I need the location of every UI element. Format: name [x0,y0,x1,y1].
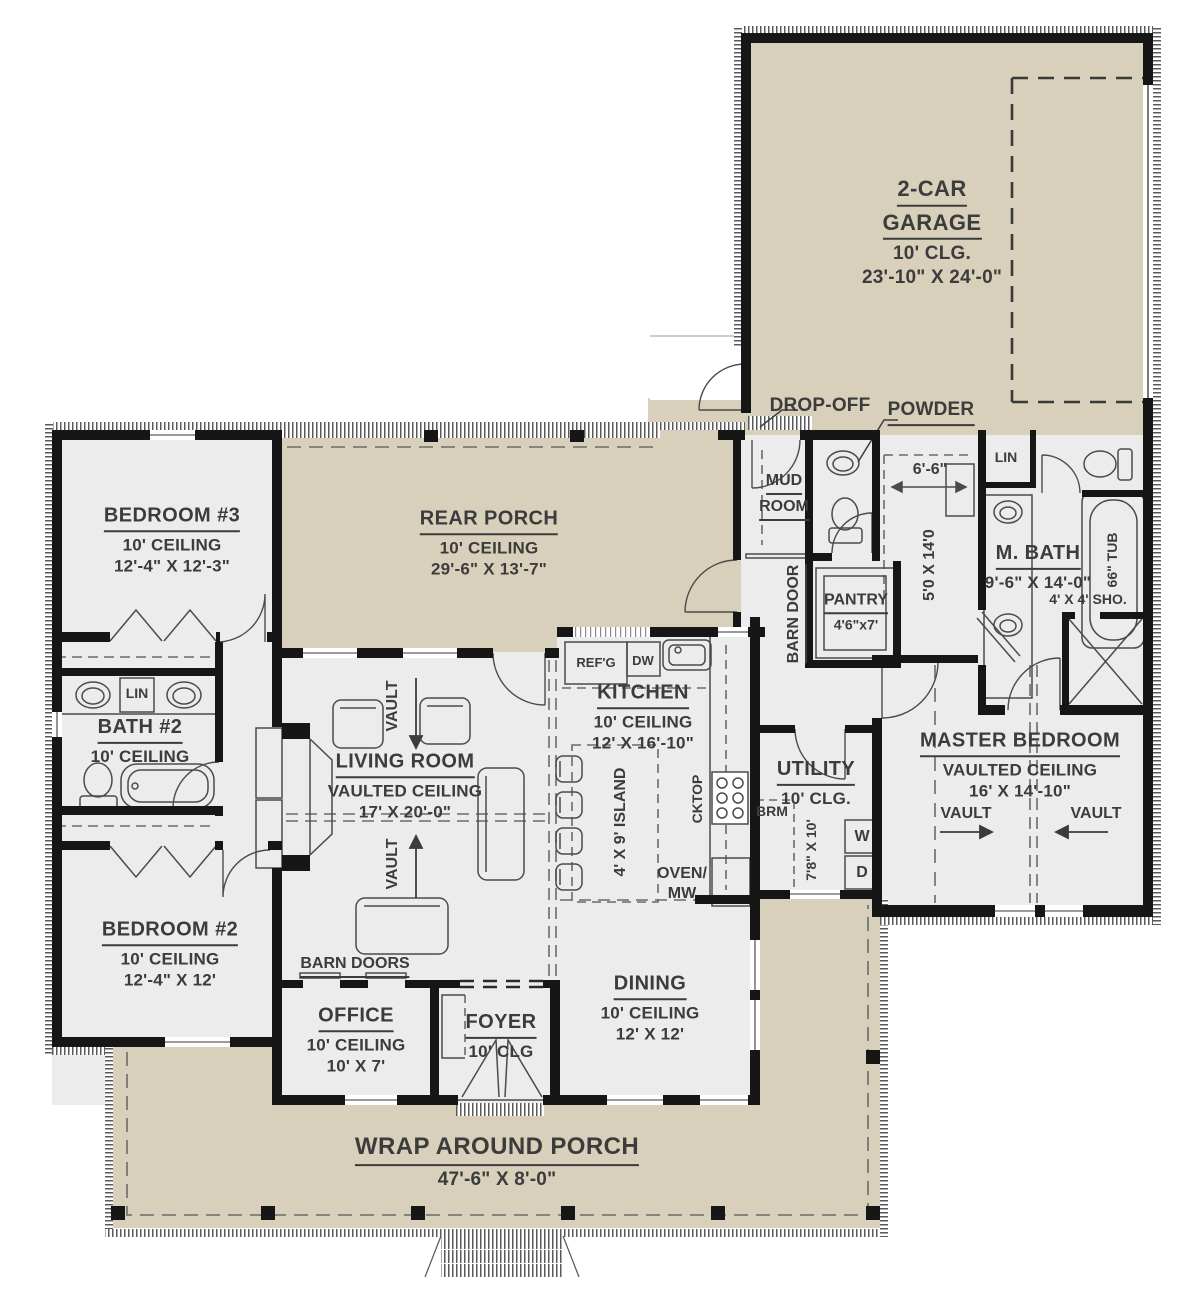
oven-mw-label: OVEN/ MW [657,864,707,904]
pantry-dims: 4'6"x7' [824,616,888,634]
mbath-label: M. BATH 9'-6" X 14'-0" [985,541,1091,593]
mbath-linen-label: LIN [995,448,1018,468]
floor-plan: 2-CAR GARAGE 10' CLG. 23'-10" X 24'-0" D… [0,0,1200,1296]
island-label: 4' X 9' ISLAND [612,768,630,877]
master-bedroom-label: MASTER BEDROOM VAULTED CEILING 16' X 14'… [920,728,1120,802]
bath2-linen-label: LIN [126,684,149,704]
master-closet-dims: 5'0 X 14'0 [921,529,939,601]
washer-label: W [854,827,869,847]
wrap-porch-label: WRAP AROUND PORCH 47'-6" X 8'-0" [355,1132,639,1192]
master-closet-width: 6'-6" [913,460,948,480]
floor-plan-drawing [0,0,1200,1296]
barn-door-label: BARN DOOR [785,565,809,664]
rear-porch-label: REAR PORCH 10' CEILING 29'-6" X 13'-7" [420,506,558,580]
bedroom3-label: BEDROOM #3 10' CEILING 12'-4" X 12'-3" [104,503,240,577]
vault-label-living-bottom: VAULT [384,839,402,890]
dryer-label: D [856,863,868,883]
utility-label: UTILITY 10' CLG. [777,757,855,809]
pantry-label: PANTRY 4'6"x7' [824,590,888,634]
cooktop-label: CKTOP [689,775,707,824]
fridge-label: REF'G [576,653,615,673]
drop-off-label: DROP-OFF [770,394,871,418]
garage-title-line1: 2-CAR [897,175,966,207]
utility-dims: 7'8" X 10' [803,819,821,881]
dishwasher-label: DW [632,651,654,671]
dining-label: DINING 10' CEILING 12' X 12' [601,971,700,1045]
garage-title-line2: GARAGE [883,208,982,240]
foyer-label: FOYER 10' CLG [466,1010,537,1062]
living-room-label: LIVING ROOM VAULTED CEILING 17' X 20'-0" [328,749,482,823]
garage-dims: 23'-10" X 24'-0" [862,266,1002,290]
mud-room-label: MUD ROOM [759,471,809,523]
shower-label: 4' X 4' SHO. [1049,590,1126,610]
office-label: OFFICE 10' CEILING 10' X 7' [307,1003,406,1077]
vault-label-living-top: VAULT [384,681,402,732]
tub-label: 66" TUB [1104,533,1122,588]
powder-label: POWDER [888,398,975,428]
bath2-label: BATH #2 10' CEILING [91,715,190,767]
vault-label-master-right: VAULT [1071,804,1122,824]
barn-doors-label: BARN DOORS [300,954,409,980]
vault-label-master-left: VAULT [941,804,992,824]
kitchen-label: KITCHEN 10' CEILING 12' X 16'-10" [592,680,694,754]
garage-ceiling: 10' CLG. [862,242,1002,266]
garage-label: 2-CAR GARAGE 10' CLG. 23'-10" X 24'-0" [862,175,1002,290]
bedroom2-label: BEDROOM #2 10' CEILING 12'-4" X 12' [102,917,238,991]
broom-label: BRM [756,802,788,822]
